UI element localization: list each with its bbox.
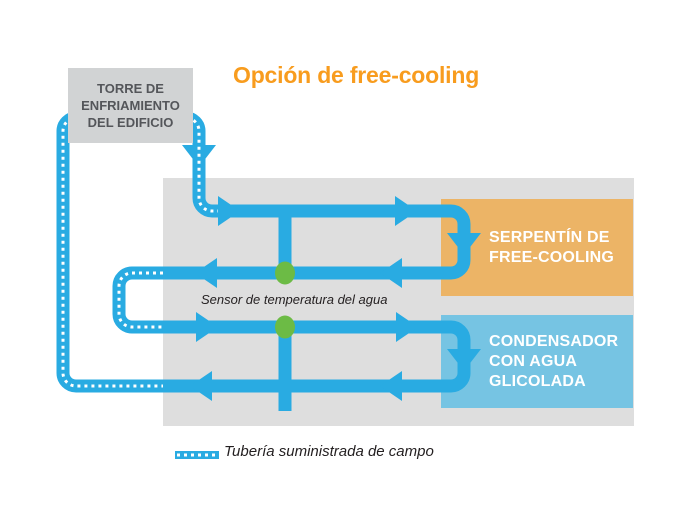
glycol-condenser-label: CONDENSADOR CON AGUA GLICOLADA (441, 332, 618, 392)
cooling-tower-label: TORRE DE ENFRIAMIENTO DEL EDIFICIO (81, 80, 180, 131)
field-pipe-left-uturn (119, 273, 163, 327)
free-cooling-coil-label: SERPENTÍN DE FREE-COOLING (441, 228, 614, 268)
cooling-tower-box: TORRE DE ENFRIAMIENTO DEL EDIFICIO (68, 68, 193, 143)
free-cooling-coil-box: SERPENTÍN DE FREE-COOLING (441, 199, 633, 296)
legend-swatch-field-pipe (175, 451, 219, 459)
legend-field-pipe-label: Tubería suministrada de campo (224, 443, 434, 460)
field-pipe-tower-return (63, 118, 163, 386)
legend-swatch-pipe (175, 451, 219, 459)
water-temp-sensor-label: Sensor de temperatura del agua (201, 292, 387, 307)
diagram-title: Opción de free-cooling (233, 62, 479, 89)
glycol-condenser-box: CONDENSADOR CON AGUA GLICOLADA (441, 315, 633, 408)
free-cooling-diagram: SERPENTÍN DE FREE-COOLING CONDENSADOR CO… (0, 0, 692, 514)
flow-arrow-down-supply (182, 145, 216, 167)
